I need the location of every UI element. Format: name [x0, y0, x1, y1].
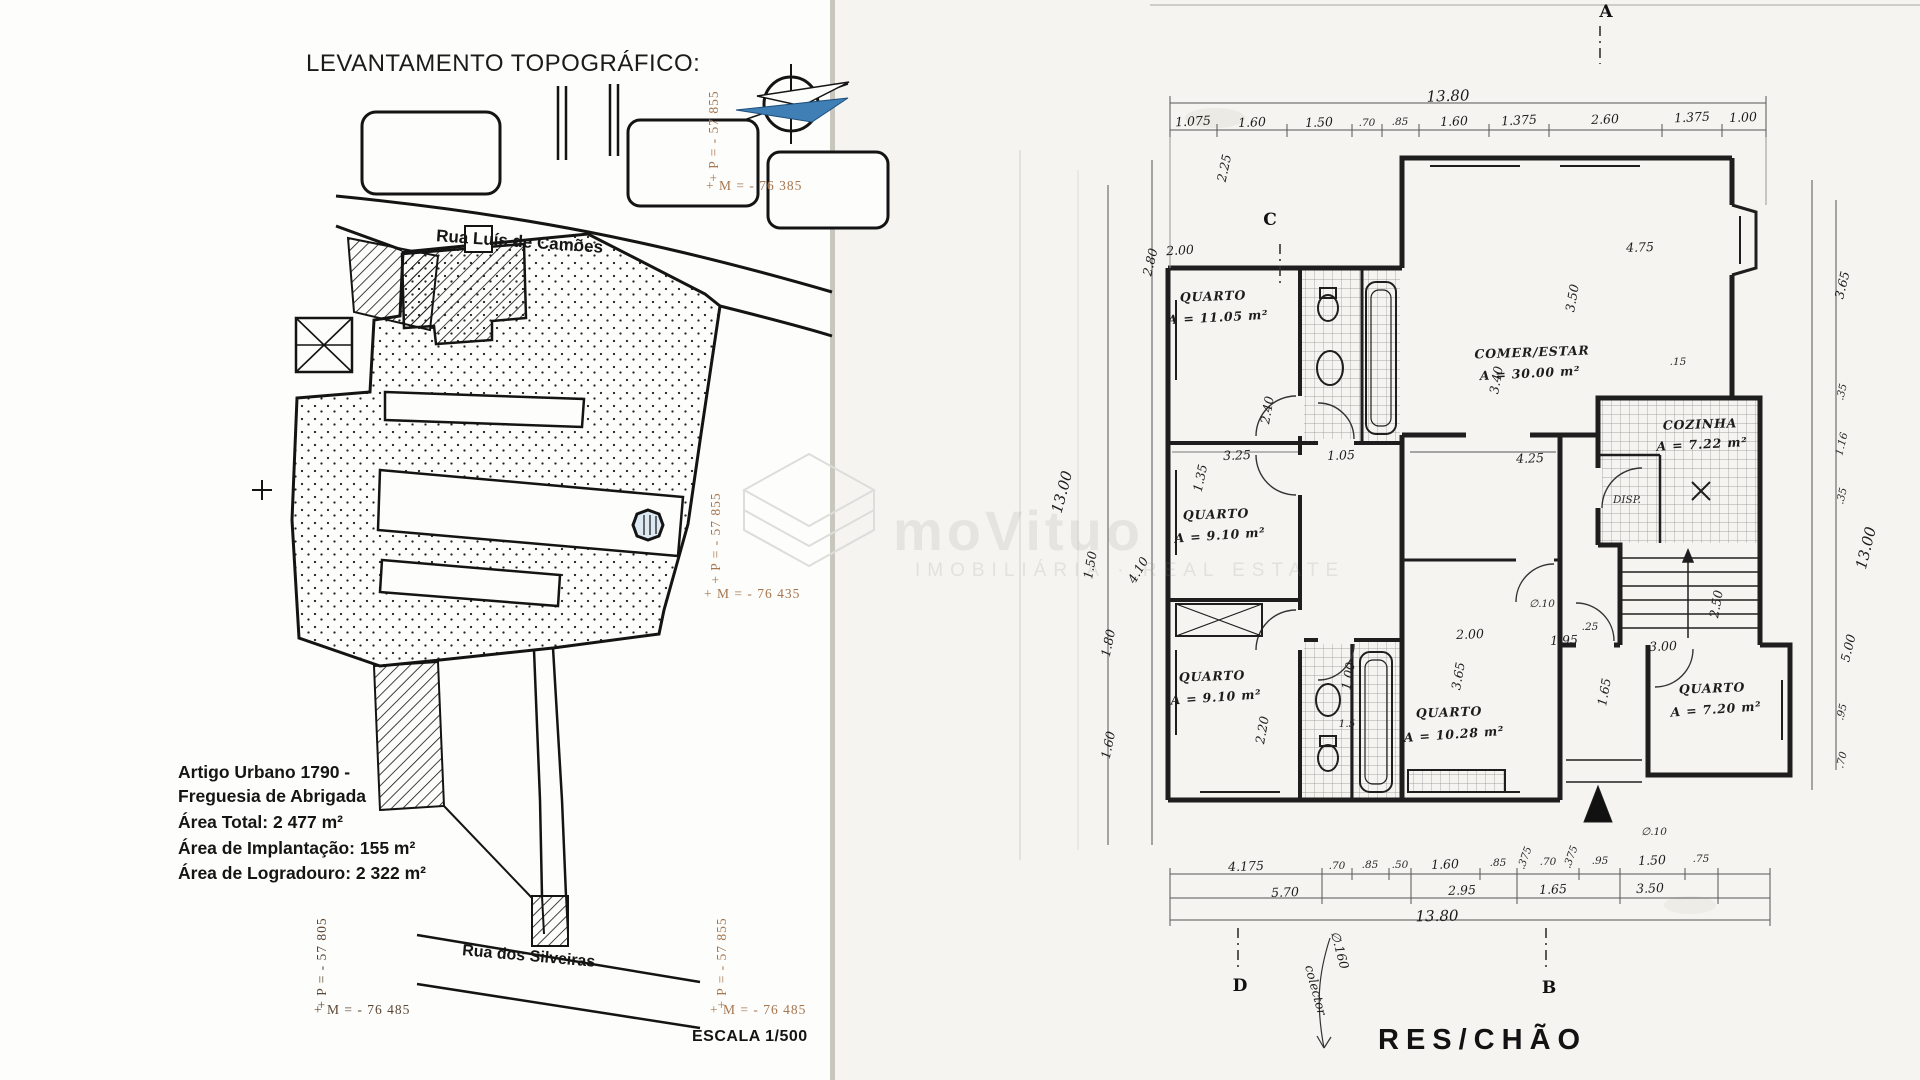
- area-logradouro: Área de Logradouro: 2 322 m²: [178, 863, 426, 884]
- dimension-label: 1.5: [1339, 718, 1356, 730]
- dimension-label: 3.50: [1636, 880, 1664, 896]
- dimension-label: .95: [1592, 855, 1609, 867]
- dimension-label: 4.175: [1228, 858, 1264, 874]
- room-label: QUARTO: [1416, 703, 1483, 720]
- coord-mid-right-p: + P = - 57 855: [708, 492, 724, 583]
- coord-top-right-p: + P = - 57 855: [706, 90, 722, 181]
- dimension-label: 3.25: [1223, 447, 1251, 463]
- dimension-label: 1.05: [1327, 447, 1355, 463]
- dimension-label: 1.375: [1501, 112, 1538, 129]
- floor-plan-title: RES/CHÃO: [1378, 1024, 1587, 1057]
- dimension-label: .50: [1392, 859, 1409, 871]
- dimension-label: 2.00: [1456, 626, 1484, 642]
- area-implantacao: Área de Implantação: 155 m²: [178, 838, 415, 859]
- dimension-label: 1.50: [1638, 852, 1666, 868]
- dimension-label: 13.80: [1426, 86, 1470, 105]
- dimension-label: .75: [1693, 853, 1710, 865]
- dimension-label: .70: [1329, 860, 1346, 872]
- dimension-label: 1.375: [1674, 109, 1711, 126]
- artigo-line1: Artigo Urbano 1790 -: [178, 762, 350, 783]
- dimension-label: 13.80: [1415, 907, 1458, 926]
- room-label: QUARTO: [1183, 505, 1250, 522]
- dimension-label: 2.60: [1591, 111, 1619, 127]
- dimension-label: 1.00: [1729, 109, 1757, 125]
- scale-label: ESCALA 1/500: [692, 1028, 808, 1046]
- dimension-label: .85: [1362, 859, 1379, 871]
- coord-bottom-right-m: + M = - 76 485: [710, 1002, 806, 1018]
- dimension-label: ∅.10: [1529, 598, 1555, 610]
- area-total: Área Total: 2 477 m²: [178, 812, 343, 833]
- room-label: QUARTO: [1180, 287, 1247, 304]
- dimension-label: 2.00: [1166, 242, 1195, 258]
- dimension-label: 5.70: [1271, 884, 1299, 900]
- watermark-brand: moVituo: [893, 498, 1144, 563]
- dimension-label: .15: [1670, 356, 1687, 368]
- dimension-label: 4.25: [1516, 450, 1544, 466]
- coord-bottom-left-m: + M = - 76 485: [314, 1002, 410, 1018]
- coord-bottom-left-p: + P = - 57 805: [314, 917, 330, 1008]
- dimension-label: .70: [1540, 856, 1557, 868]
- dimension-label: .85: [1490, 857, 1507, 869]
- coord-bottom-right-p: + P = - 57 855: [714, 917, 730, 1008]
- dimension-label: DISP.: [1613, 494, 1641, 506]
- section-marker-a: A: [1599, 2, 1612, 22]
- dimension-label: 1.60: [1431, 856, 1459, 872]
- dimension-label: 1.95: [1550, 632, 1578, 648]
- room-label: QUARTO: [1179, 667, 1246, 684]
- dimension-label: .85: [1392, 116, 1409, 128]
- dimension-label: 2.95: [1448, 882, 1476, 898]
- page-title: LEVANTAMENTO TOPOGRÁFICO:: [306, 50, 700, 78]
- coord-top-right-m: + M = - 76 385: [706, 178, 802, 194]
- dimension-label: ∅.10: [1641, 826, 1667, 838]
- dimension-label: 3.00: [1649, 638, 1677, 654]
- dimension-label: .25: [1582, 621, 1599, 633]
- dimension-label: 1.65: [1539, 881, 1567, 897]
- scanned-drawing-sheet: LEVANTAMENTO TOPOGRÁFICO: Rua Luís de Ca…: [0, 0, 1920, 1080]
- section-marker-c: C: [1263, 210, 1277, 230]
- dimension-label: 1.50: [1305, 114, 1333, 130]
- watermark-cube-icon: [742, 452, 877, 607]
- well-symbol: [633, 510, 663, 540]
- dimension-label: 1.075: [1175, 113, 1212, 130]
- section-marker-b: B: [1542, 978, 1556, 998]
- section-marker-d: D: [1233, 976, 1248, 996]
- dimension-label: .70: [1359, 117, 1376, 129]
- artigo-line2: Freguesia de Abrigada: [178, 786, 366, 807]
- dimension-label: 4.75: [1626, 239, 1654, 255]
- dimension-label: 1.60: [1238, 114, 1266, 130]
- dimension-label: 1.60: [1440, 113, 1468, 129]
- room-label: COZINHA: [1663, 415, 1738, 433]
- room-label: QUARTO: [1679, 679, 1746, 696]
